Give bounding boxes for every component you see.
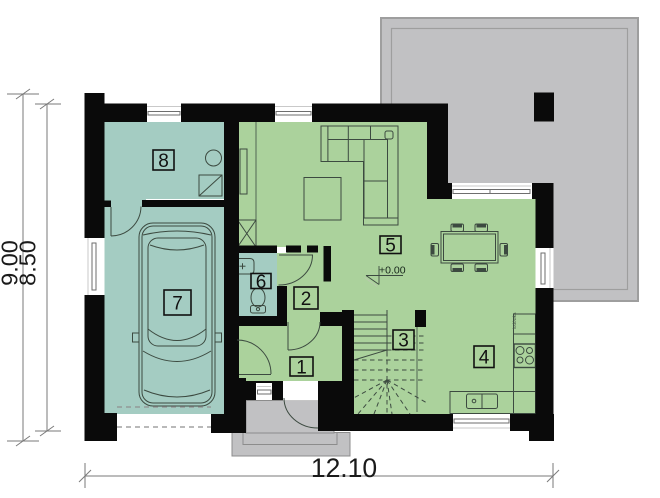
svg-text:lodówka: lodówka xyxy=(512,312,517,329)
svg-text:3: 3 xyxy=(398,331,409,352)
svg-text:+0.00: +0.00 xyxy=(379,265,406,277)
svg-text:8: 8 xyxy=(158,151,169,172)
svg-text:5: 5 xyxy=(385,236,396,257)
svg-text:7: 7 xyxy=(172,293,183,314)
svg-text:4: 4 xyxy=(479,348,490,369)
svg-text:8.50: 8.50 xyxy=(15,240,41,286)
svg-text:6: 6 xyxy=(256,272,267,293)
svg-text:1: 1 xyxy=(296,357,307,378)
svg-text:2: 2 xyxy=(301,289,312,310)
svg-text:12.10: 12.10 xyxy=(311,453,377,483)
